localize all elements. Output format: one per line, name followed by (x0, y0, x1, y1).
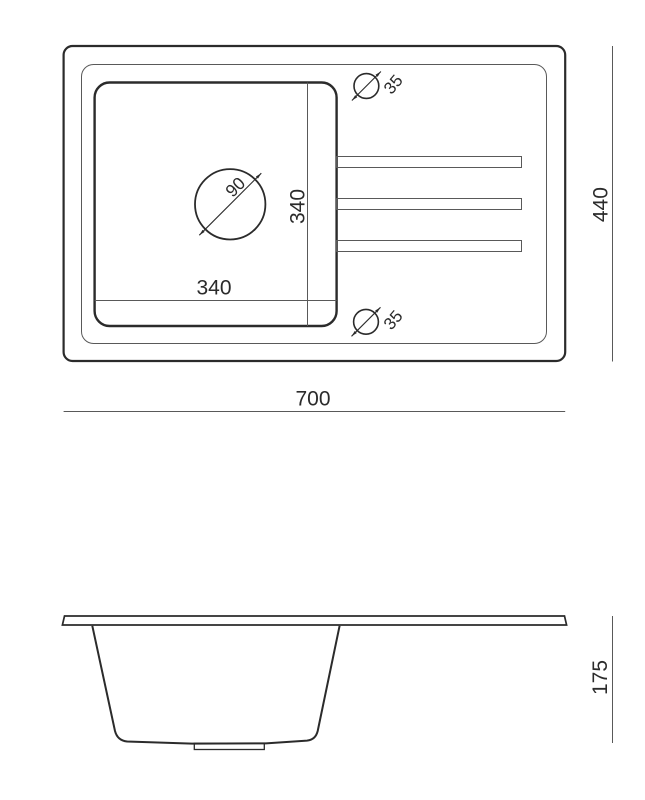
svg-text:35: 35 (380, 307, 407, 334)
svg-text:90: 90 (221, 173, 249, 201)
svg-text:340: 340 (196, 277, 231, 300)
svg-text:35: 35 (380, 71, 407, 98)
svg-text:440: 440 (589, 187, 612, 222)
svg-text:175: 175 (589, 660, 612, 695)
svg-text:340: 340 (287, 189, 310, 224)
svg-text:700: 700 (295, 388, 330, 411)
